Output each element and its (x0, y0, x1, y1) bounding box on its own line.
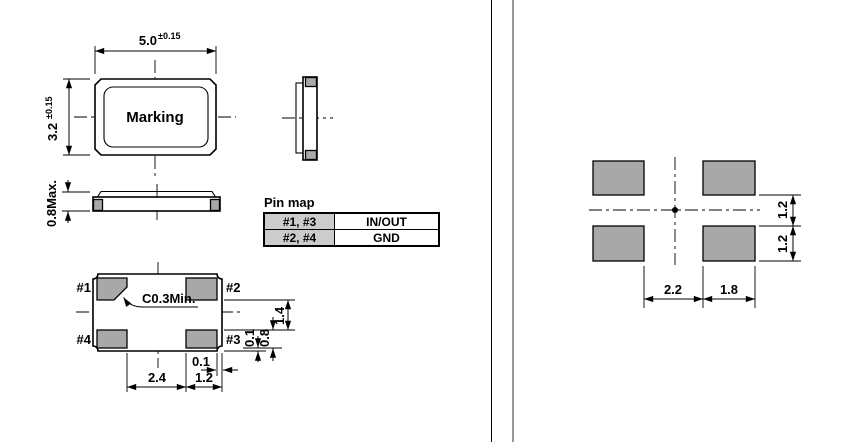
dimension-height-value: 3.2 (45, 123, 60, 141)
land-pad (703, 161, 755, 195)
pin-1-label: #1 (77, 280, 91, 295)
land-pad (593, 226, 644, 261)
pin-3-label: #3 (226, 332, 240, 347)
dimension-pad-width: 1.2 (195, 370, 213, 385)
land-pattern: 1.2 1.2 2.2 1.8 (589, 157, 801, 308)
panel-divider (492, 0, 514, 442)
front-view: 0.8Max. (44, 180, 220, 227)
dimension-pad-pitch: 2.4 (148, 370, 167, 385)
pad-3 (186, 330, 217, 348)
land-pad (593, 161, 644, 195)
bottom-view: #1 #2 #4 #3 C0.3Min. 0.1 2.4 1.2 1.4 0.8… (76, 262, 295, 392)
dimension-width-tolerance: ±0.15 (158, 31, 180, 41)
terminal-pad (94, 200, 103, 211)
terminal-pad (211, 200, 220, 211)
pin-map-table: #1, #3 IN/OUT #2, #4 GND (263, 212, 440, 247)
pin-map-function-cell: IN/OUT (335, 213, 440, 230)
chamfer-note: C0.3Min. (142, 291, 195, 306)
extension-line (644, 266, 755, 308)
dimension-pad-gap-v: 1.4 (272, 306, 287, 325)
pin-map-function-cell: GND (335, 230, 440, 247)
dimension-height-tolerance: ±0.15 (44, 97, 54, 119)
datasheet-dimension-drawing: Marking 5.0 ±0.15 3.2 ±0.15 0.8Max. (0, 0, 849, 442)
body-profile (93, 197, 220, 211)
terminal-pad (306, 78, 317, 87)
terminal-pad (306, 151, 317, 160)
dimension-edge-offset-h: 0.1 (192, 354, 210, 369)
center-point (672, 207, 678, 213)
dimension-pad-height: 1.2 (775, 235, 790, 253)
pin-4-label: #4 (77, 332, 92, 347)
extension-line (95, 46, 216, 74)
land-pad (703, 226, 755, 261)
pin-2-label: #2 (226, 280, 240, 295)
pin-map-pins-cell: #2, #4 (264, 230, 335, 247)
dimension-pad-height: 0.8 (257, 329, 272, 347)
pin-map-title: Pin map (264, 195, 439, 210)
top-view: Marking 5.0 ±0.15 3.2 ±0.15 (44, 31, 236, 176)
dimension-pad-gap-v: 1.2 (775, 201, 790, 219)
marking-label: Marking (126, 109, 184, 126)
side-view (282, 77, 333, 160)
pin-map-row: #2, #4 GND (264, 230, 439, 247)
pin-map: Pin map #1, #3 IN/OUT #2, #4 GND (263, 195, 439, 247)
dimension-pad-gap-h: 2.2 (664, 282, 682, 297)
dimension-pad-width: 1.8 (720, 282, 738, 297)
lid-profile (98, 192, 216, 198)
dimension-width-value: 5.0 (139, 33, 157, 48)
dimension-edge-offset-v: 0.1 (242, 329, 257, 347)
extension-line (62, 192, 90, 211)
pin-map-pins-cell: #1, #3 (264, 213, 335, 230)
pin-map-row: #1, #3 IN/OUT (264, 213, 439, 230)
dimension-max-height: 0.8Max. (44, 180, 59, 227)
body-profile (303, 77, 317, 160)
pad-4 (97, 330, 127, 348)
